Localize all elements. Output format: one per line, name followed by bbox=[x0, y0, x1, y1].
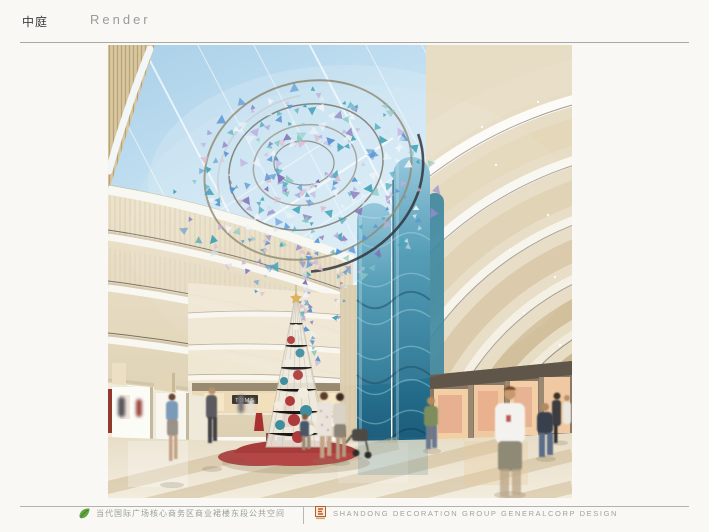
leaf-icon bbox=[78, 507, 91, 520]
page-subtitle: Render bbox=[90, 12, 151, 27]
atrium-render-image: TOMS bbox=[108, 45, 572, 498]
presentation-slide: { "header": { "title_cn": "中庭", "subtitl… bbox=[0, 0, 709, 532]
footer-project: 当代国际广场核心商务区商业裙楼东段公共空间 bbox=[78, 505, 285, 521]
company-logo-icon bbox=[315, 506, 326, 520]
company-name-text: SHANDONG DECORATION GROUP GENERALCORP DE… bbox=[333, 509, 618, 518]
project-name-text: 当代国际广场核心商务区商业裙楼东段公共空间 bbox=[96, 508, 285, 519]
page-title: 中庭 bbox=[22, 13, 48, 30]
header-divider bbox=[20, 42, 689, 43]
footer-company: SHANDONG DECORATION GROUP GENERALCORP DE… bbox=[315, 504, 618, 522]
light-glow bbox=[128, 85, 572, 385]
footer-vertical-divider bbox=[303, 507, 304, 524]
